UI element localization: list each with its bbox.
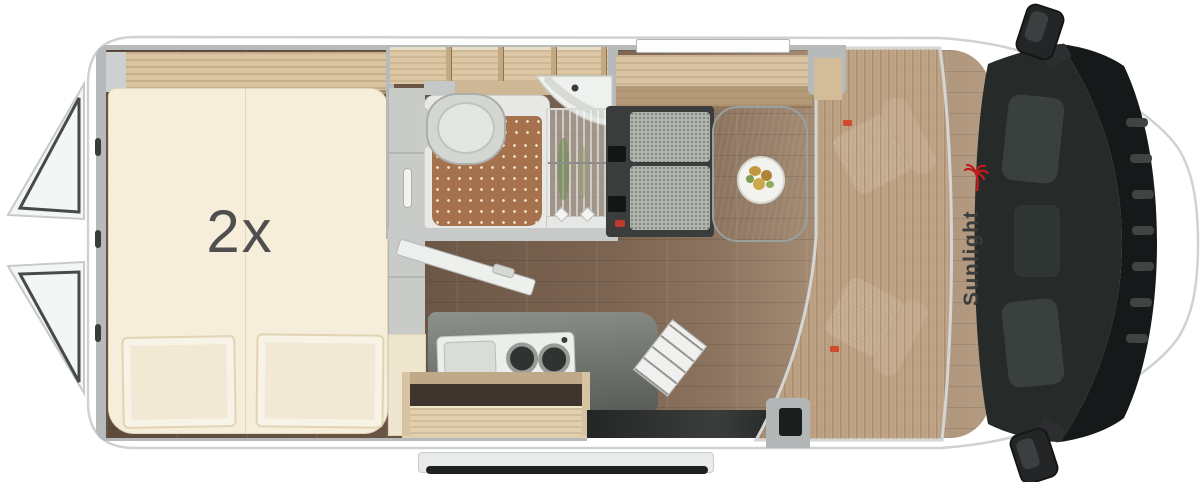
cab-front-layer — [0, 0, 1200, 482]
cab-seat-silhouette-top — [1001, 93, 1066, 184]
palm-icon — [962, 164, 992, 194]
roof-window — [636, 39, 790, 53]
brand-text: Sunlight — [960, 210, 984, 306]
floorplan-canvas: 2x — [0, 0, 1200, 482]
mirror-face — [1023, 10, 1049, 44]
side-mirror-top — [1014, 4, 1076, 68]
side-mirror-bottom — [1008, 418, 1070, 480]
brand-logo: Sunlight — [950, 192, 994, 324]
cab-seat-silhouette-bottom — [1001, 297, 1066, 388]
center-console — [1014, 205, 1060, 277]
mirror-face — [1015, 437, 1041, 471]
